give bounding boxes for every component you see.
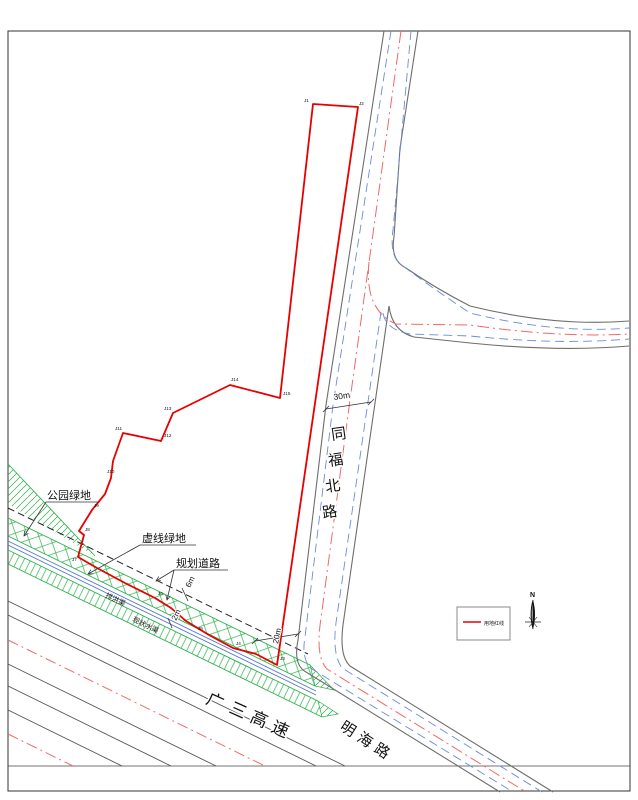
north-label: N — [530, 592, 535, 599]
vertex-label: J13 — [164, 406, 172, 411]
vertex-label: J14 — [231, 377, 239, 382]
vertex-label: J9 — [94, 503, 99, 508]
vertex-label: J4 — [236, 641, 241, 646]
vertex-label: J2 — [359, 101, 364, 106]
expressway-lines — [8, 601, 345, 766]
drainage-channel-line — [8, 545, 316, 695]
dashed-green-label: 虚线绿地 — [142, 531, 186, 545]
road-centerline — [319, 31, 526, 792]
cad-site-plan: J1 J2 J3 J4 J5 J6 J7 J8 J9 J10 J11 J12 J… — [0, 0, 638, 800]
minghai-char-1: 明 — [337, 718, 359, 740]
north-arrow: N — [525, 592, 541, 629]
vertex-label: J1 — [304, 98, 309, 103]
dim-6m: 6m — [184, 575, 197, 589]
park-green-label: 公园绿地 — [47, 488, 91, 502]
tongfu-char-1: 同 — [330, 425, 347, 444]
compass-needle-outline — [531, 600, 533, 629]
dim-30m: 30m — [333, 390, 351, 402]
road-blue-line — [304, 31, 513, 792]
expressway-char-2: 三 — [226, 698, 249, 722]
vertex-label: J8 — [85, 527, 90, 532]
vertex-label: J5 — [198, 626, 203, 631]
vertex-label: J12 — [164, 433, 172, 438]
legend: 用地红线 — [457, 607, 510, 640]
vertex-label: J6 — [158, 591, 163, 596]
vertex-label: J15 — [283, 391, 291, 396]
plan-canvas: J1 J2 J3 J4 J5 J6 J7 J8 J9 J10 J11 J12 J… — [0, 0, 638, 800]
east-road — [368, 262, 629, 348]
planned-road-label: 规划道路 — [176, 556, 220, 570]
vertex-label: J7 — [72, 557, 77, 562]
drainage-channel-line — [8, 541, 316, 691]
red-line-polygon — [78, 104, 358, 665]
legend-red-line-label: 用地红线 — [484, 620, 504, 627]
tongfu-char-4: 路 — [321, 503, 338, 522]
compass-needle-fill — [533, 600, 535, 629]
tongfu-minghai-road — [297, 31, 553, 792]
dim-20m: 20m — [271, 627, 283, 644]
minghai-char-3: 路 — [371, 740, 393, 762]
expressway-char-1: 广 — [203, 689, 226, 713]
land-boundary — [78, 104, 358, 665]
vertex-label: J10 — [107, 469, 115, 474]
vertex-label: J3 — [280, 656, 285, 661]
vertex-label: J11 — [115, 426, 123, 431]
minghai-char-2: 海 — [354, 729, 376, 751]
tongfu-char-3: 北 — [324, 477, 341, 496]
tongfu-char-2: 福 — [327, 451, 344, 470]
